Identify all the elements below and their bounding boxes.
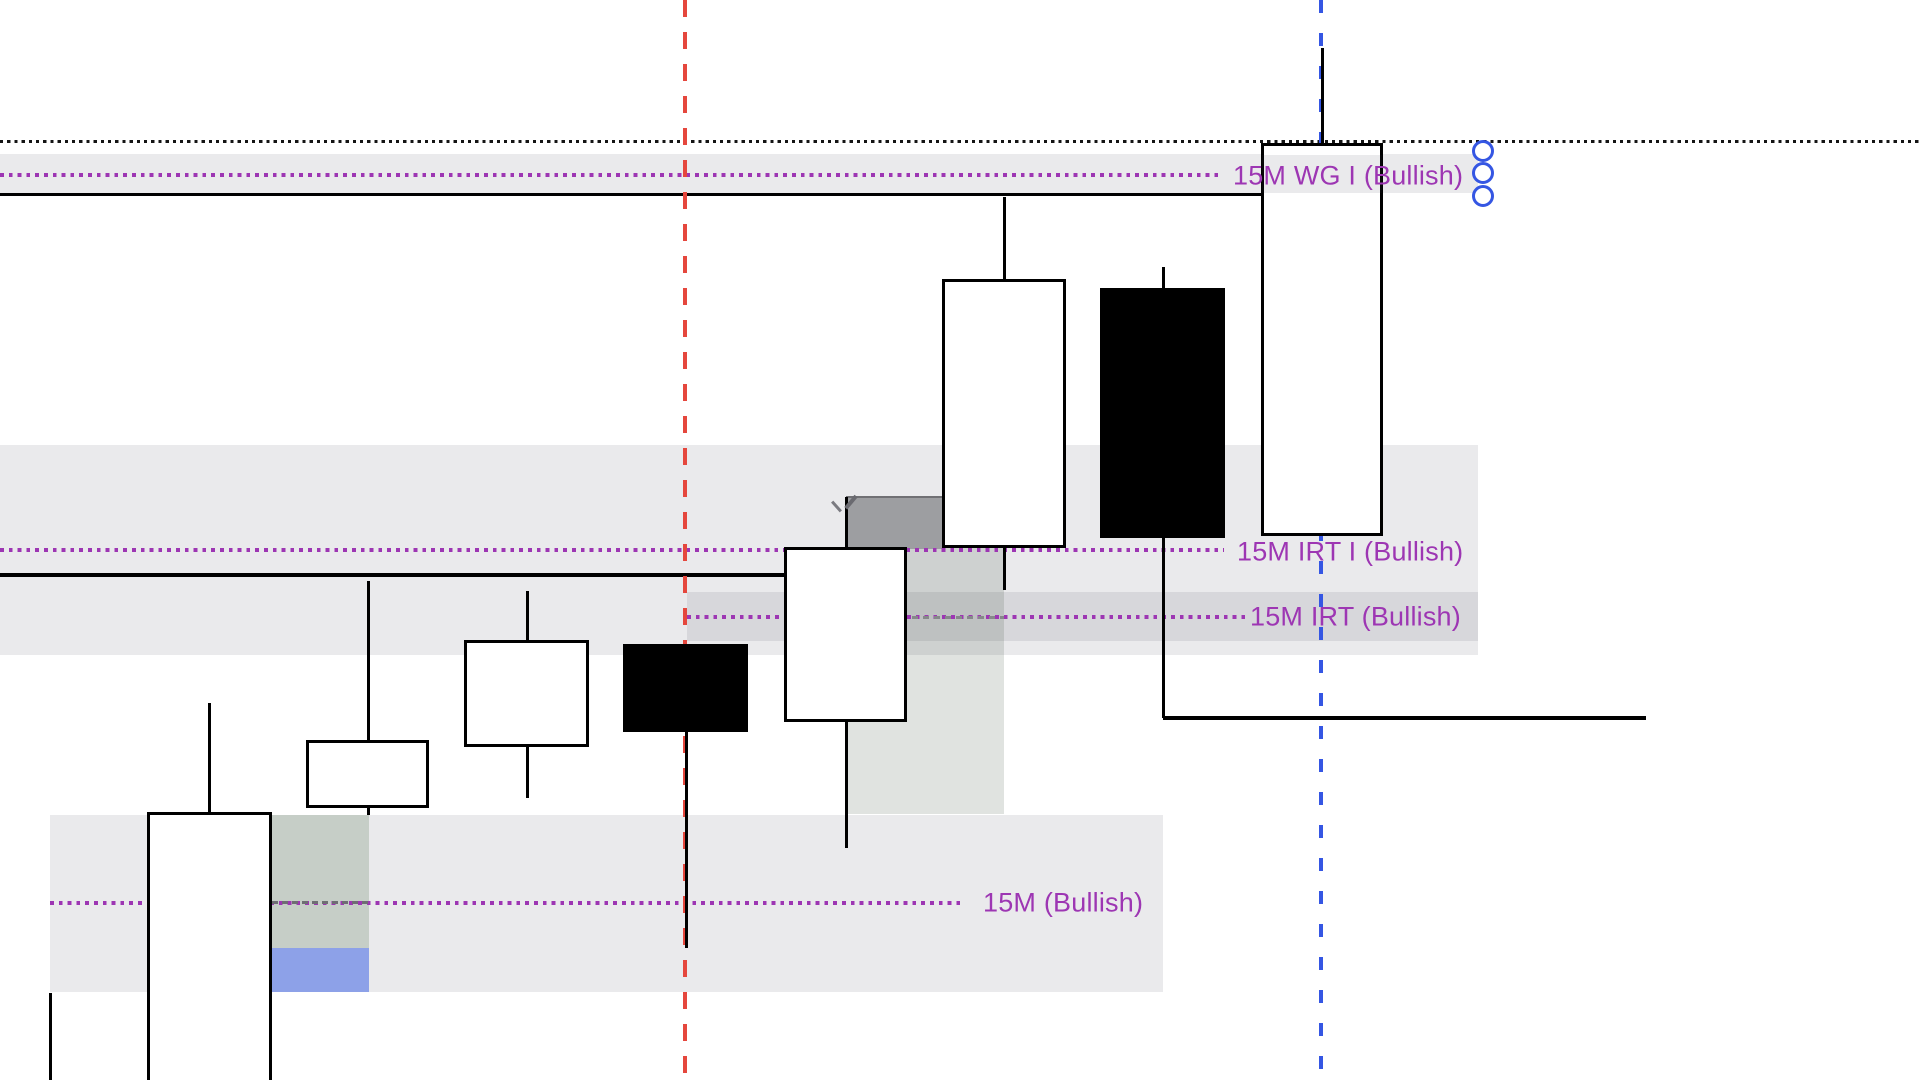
selection-handle-circle-1[interactable] <box>1472 140 1494 162</box>
chart-stage: 15M WG I (Bullish) 15M IRT I (Bullish) 1… <box>0 0 1922 1080</box>
selection-handle-circle-2[interactable] <box>1472 162 1494 184</box>
handles-layer <box>0 0 1922 1080</box>
selection-handle-circle-3[interactable] <box>1472 185 1494 207</box>
